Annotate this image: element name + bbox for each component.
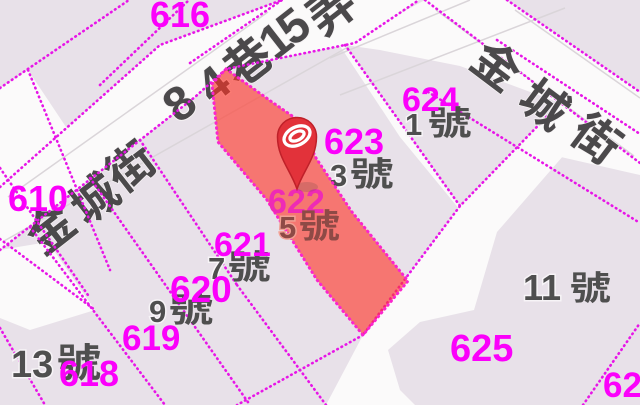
- svg-text:619: 619: [122, 319, 180, 358]
- svg-text:610: 610: [8, 178, 68, 219]
- svg-text:618: 618: [59, 353, 119, 394]
- svg-text:625: 625: [450, 328, 513, 370]
- svg-text:626: 626: [603, 366, 640, 405]
- svg-text:624: 624: [402, 81, 459, 119]
- svg-text:5: 5: [279, 210, 296, 245]
- svg-text:623: 623: [324, 121, 384, 162]
- svg-text:11: 11: [523, 267, 561, 308]
- svg-text:621: 621: [214, 226, 271, 264]
- svg-text:13: 13: [11, 344, 53, 386]
- svg-text:616: 616: [150, 0, 210, 35]
- svg-text:620: 620: [170, 269, 232, 310]
